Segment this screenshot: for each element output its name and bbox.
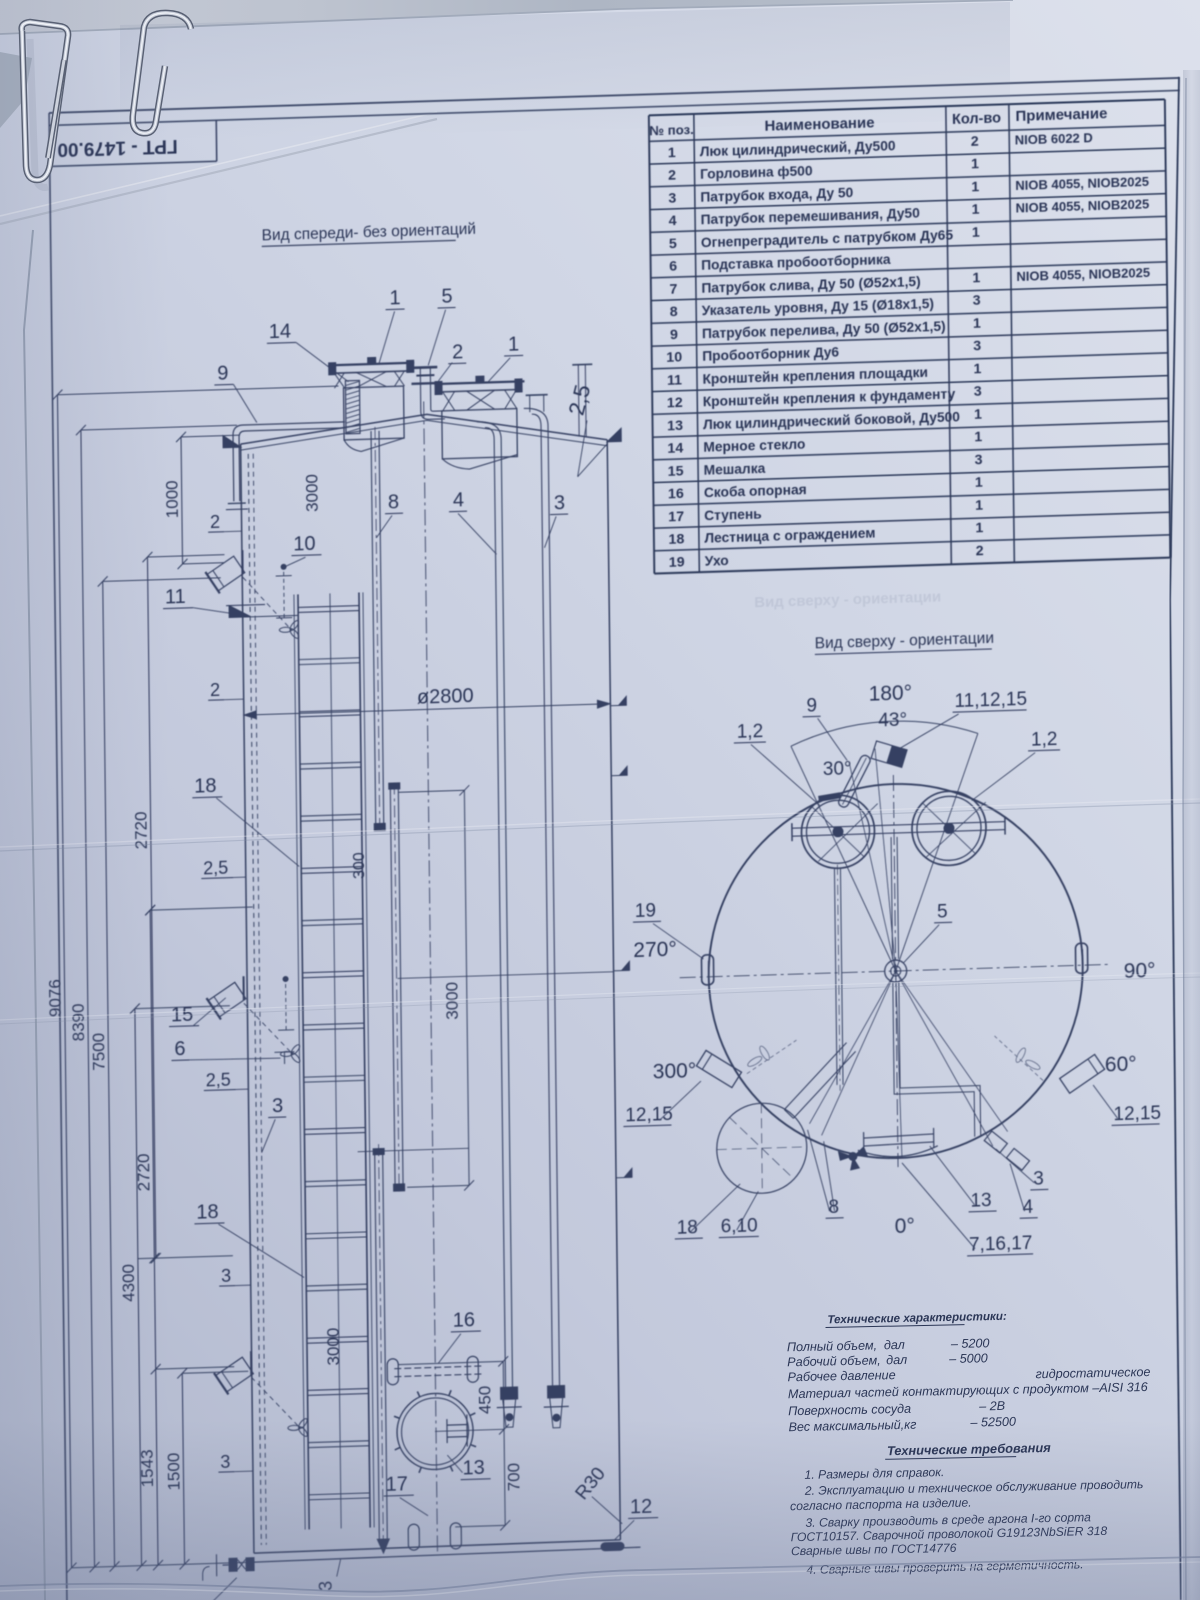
svg-text:4: 4 bbox=[669, 213, 677, 229]
svg-text:12,15: 12,15 bbox=[625, 1104, 673, 1126]
svg-text:3: 3 bbox=[272, 1095, 283, 1117]
svg-text:ø2800: ø2800 bbox=[417, 685, 474, 709]
svg-text:1: 1 bbox=[389, 287, 400, 309]
svg-text:8: 8 bbox=[388, 491, 399, 513]
svg-text:4: 4 bbox=[453, 489, 464, 511]
svg-text:270°: 270° bbox=[633, 938, 677, 962]
svg-text:дал: дал bbox=[886, 1353, 907, 1367]
svg-text:12,15: 12,15 bbox=[1113, 1103, 1161, 1125]
svg-text:300°: 300° bbox=[653, 1059, 697, 1083]
svg-text:2,5: 2,5 bbox=[203, 858, 228, 879]
svg-text:Ступень: Ступень bbox=[704, 506, 762, 523]
svg-text:2: 2 bbox=[668, 168, 676, 184]
svg-text:1: 1 bbox=[971, 179, 979, 195]
svg-text:60°: 60° bbox=[1105, 1053, 1137, 1077]
svg-text:18: 18 bbox=[194, 775, 217, 798]
svg-text:1,2: 1,2 bbox=[1031, 729, 1058, 751]
svg-text:11: 11 bbox=[667, 372, 682, 388]
svg-text:3: 3 bbox=[975, 452, 983, 468]
svg-text:3000: 3000 bbox=[303, 474, 322, 512]
svg-text:6: 6 bbox=[174, 1038, 185, 1060]
svg-text:2,5: 2,5 bbox=[206, 1070, 231, 1091]
svg-text:1: 1 bbox=[975, 498, 983, 514]
svg-text:Мерное стекло: Мерное стекло bbox=[703, 437, 805, 455]
svg-text:3: 3 bbox=[973, 338, 981, 354]
svg-text:7: 7 bbox=[669, 281, 677, 297]
svg-text:Рабочее давление: Рабочее давление bbox=[787, 1368, 895, 1384]
svg-text:17: 17 bbox=[668, 509, 684, 525]
svg-text:1: 1 bbox=[975, 520, 983, 536]
svg-text:3: 3 bbox=[668, 190, 676, 206]
svg-text:1,2: 1,2 bbox=[737, 721, 764, 743]
svg-text:1: 1 bbox=[668, 145, 676, 161]
svg-text:гидростатическое: гидростатическое bbox=[1035, 1365, 1150, 1381]
svg-text:3000: 3000 bbox=[443, 982, 462, 1020]
svg-text:5: 5 bbox=[441, 286, 452, 308]
svg-text:2: 2 bbox=[976, 543, 984, 559]
svg-text:4: 4 bbox=[1022, 1197, 1033, 1218]
svg-text:9: 9 bbox=[670, 327, 678, 343]
svg-text:0°: 0° bbox=[895, 1215, 915, 1239]
svg-text:3: 3 bbox=[554, 492, 565, 514]
svg-text:18: 18 bbox=[668, 532, 684, 548]
svg-text:– 2В: – 2В bbox=[978, 1399, 1005, 1414]
svg-text:1: 1 bbox=[974, 429, 982, 445]
svg-text:Поверхность сосуда: Поверхность сосуда bbox=[788, 1402, 911, 1418]
svg-text:5: 5 bbox=[669, 236, 677, 252]
svg-text:16: 16 bbox=[453, 1309, 476, 1332]
svg-text:7,16,17: 7,16,17 bbox=[969, 1233, 1033, 1256]
svg-text:10: 10 bbox=[293, 533, 316, 556]
svg-text:14: 14 bbox=[269, 321, 292, 344]
svg-text:43°: 43° bbox=[878, 710, 907, 732]
svg-text:8: 8 bbox=[670, 304, 678, 320]
svg-text:3: 3 bbox=[974, 384, 982, 400]
svg-text:Полный объем,: Полный объем, bbox=[787, 1338, 877, 1354]
svg-text:1: 1 bbox=[974, 407, 982, 423]
svg-text:11,12,15: 11,12,15 bbox=[954, 689, 1027, 712]
svg-text:6: 6 bbox=[669, 259, 677, 275]
svg-text:1: 1 bbox=[508, 333, 519, 355]
svg-text:3: 3 bbox=[221, 1266, 231, 1286]
svg-text:1: 1 bbox=[972, 270, 980, 286]
svg-text:15: 15 bbox=[668, 463, 684, 479]
svg-text:3: 3 bbox=[973, 293, 981, 309]
svg-text:2: 2 bbox=[452, 341, 463, 363]
svg-text:12: 12 bbox=[667, 395, 683, 411]
svg-text:5: 5 bbox=[937, 901, 948, 922]
svg-text:дал: дал bbox=[884, 1338, 905, 1352]
svg-text:Примечание: Примечание bbox=[1015, 105, 1107, 125]
svg-text:Ухо: Ухо bbox=[705, 553, 729, 569]
svg-text:16: 16 bbox=[668, 486, 684, 502]
svg-text:1: 1 bbox=[971, 156, 979, 172]
svg-text:3000: 3000 bbox=[324, 1327, 343, 1365]
svg-text:3: 3 bbox=[1033, 1169, 1044, 1190]
svg-text:2: 2 bbox=[210, 512, 220, 532]
svg-text:9: 9 bbox=[217, 362, 228, 384]
svg-text:– 5000: – 5000 bbox=[948, 1351, 988, 1366]
svg-text:Рабочий объем,: Рабочий объем, bbox=[787, 1353, 881, 1369]
svg-text:10: 10 bbox=[666, 350, 682, 366]
svg-text:1: 1 bbox=[973, 316, 981, 332]
svg-text:13: 13 bbox=[667, 418, 683, 434]
svg-text:1: 1 bbox=[972, 202, 980, 218]
svg-text:9: 9 bbox=[806, 695, 817, 716]
svg-text:Скоба опорная: Скоба опорная bbox=[704, 482, 807, 500]
svg-text:Мешалка: Мешалка bbox=[704, 461, 766, 478]
svg-text:13: 13 bbox=[970, 1190, 991, 1212]
svg-text:450: 450 bbox=[476, 1385, 495, 1414]
svg-text:– 5200: – 5200 bbox=[950, 1336, 990, 1351]
svg-text:1: 1 bbox=[972, 225, 980, 241]
svg-text:19: 19 bbox=[635, 900, 656, 922]
svg-text:2: 2 bbox=[210, 680, 220, 700]
svg-text:2: 2 bbox=[971, 134, 979, 150]
svg-text:180°: 180° bbox=[869, 681, 913, 705]
svg-text:18: 18 bbox=[196, 1201, 219, 1224]
svg-text:14: 14 bbox=[667, 441, 683, 457]
svg-text:1: 1 bbox=[973, 361, 981, 377]
svg-text:19: 19 bbox=[669, 554, 685, 570]
svg-text:NIOB 6022 D: NIOB 6022 D bbox=[1015, 130, 1093, 147]
svg-text:1: 1 bbox=[975, 475, 983, 491]
svg-text:300: 300 bbox=[351, 852, 368, 879]
svg-text:30°: 30° bbox=[823, 758, 852, 780]
